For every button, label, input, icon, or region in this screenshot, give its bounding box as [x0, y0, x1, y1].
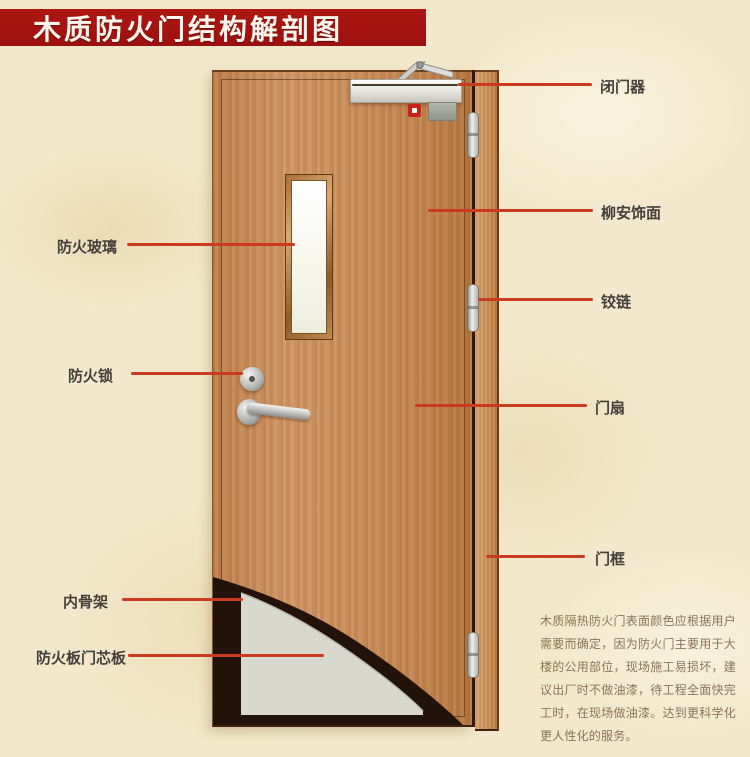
label-fire-lock: 防火锁 [68, 365, 113, 386]
leader-fire-lock [131, 372, 243, 375]
red-logo-sticker [408, 104, 421, 117]
gray-label-sticker [428, 102, 457, 121]
description-text: 木质隔热防火门表面颜色应根据用户需要而确定，因为防火门主要用于大楼的公用部位，现… [540, 610, 736, 748]
glass-pane [291, 180, 327, 334]
title-banner: 木质防火门结构解剖图 [0, 9, 426, 46]
label-veneer: 柳安饰面 [601, 202, 661, 223]
label-core-board: 防火板门芯板 [36, 647, 126, 668]
leader-inner-frame [122, 598, 243, 601]
leader-door-closer [458, 83, 592, 86]
cutaway-section [213, 563, 473, 725]
page-title: 木质防火门结构解剖图 [0, 8, 343, 48]
leader-door-leaf [415, 404, 587, 407]
leader-veneer [428, 209, 593, 212]
label-hinge: 铰链 [601, 291, 631, 312]
fire-glass-panel [285, 174, 333, 340]
label-door-frame: 门框 [595, 548, 625, 569]
leader-door-closer-inner [352, 84, 458, 86]
hinge-bottom-icon [467, 632, 479, 678]
door-leaf-graphic [212, 70, 473, 727]
label-door-closer: 闭门器 [600, 76, 645, 97]
hinge-top-icon [467, 112, 479, 158]
leader-door-frame [486, 555, 585, 558]
hinge-middle-icon [467, 284, 479, 332]
leader-hinge [478, 298, 593, 301]
label-fire-glass: 防火玻璃 [57, 236, 117, 257]
diagram-canvas: 木质防火门结构解剖图 防火玻璃 防火 [0, 0, 750, 757]
label-inner-frame: 内骨架 [63, 591, 108, 612]
leader-core-board [128, 654, 324, 657]
leader-fire-glass [127, 243, 295, 246]
fire-lock-cylinder [240, 367, 264, 391]
door-closer-body [350, 79, 462, 103]
door-frame-graphic [475, 70, 499, 731]
label-door-leaf: 门扇 [595, 397, 625, 418]
